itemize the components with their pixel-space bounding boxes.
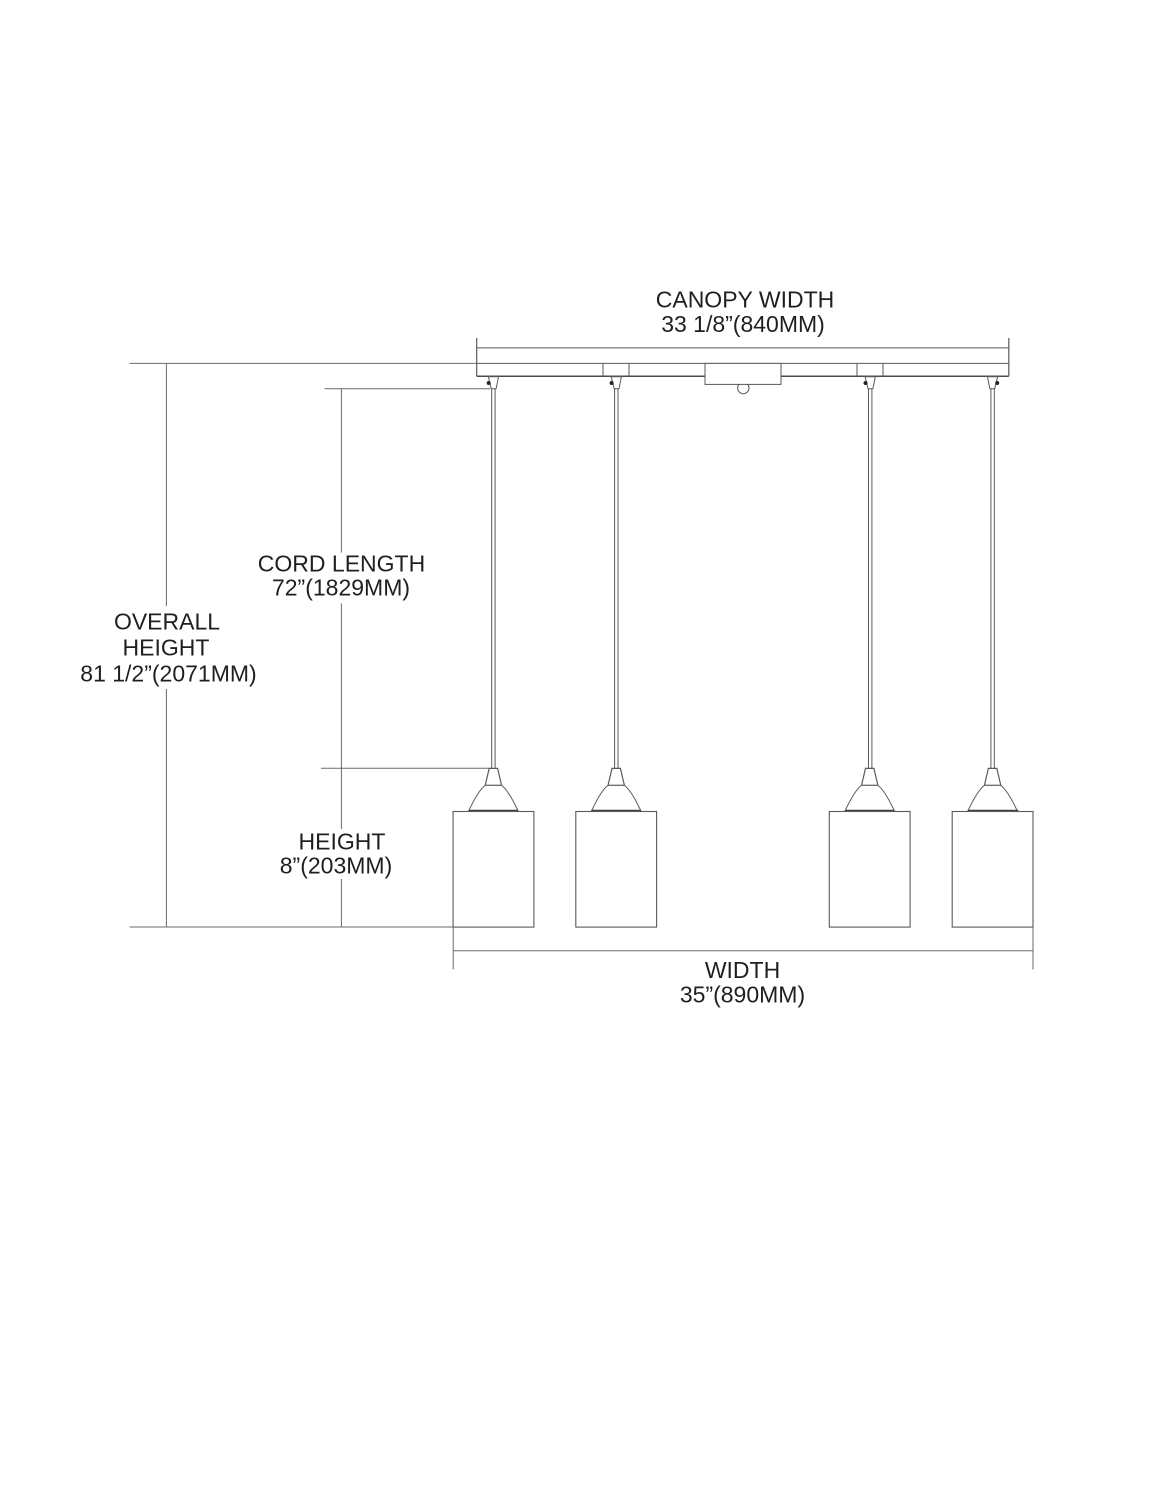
svg-text:CORD LENGTH: CORD LENGTH bbox=[258, 551, 425, 577]
svg-text:33 1/8”(840MM): 33 1/8”(840MM) bbox=[661, 311, 825, 337]
svg-text:CANOPY WIDTH: CANOPY WIDTH bbox=[656, 287, 834, 313]
svg-text:72”(1829MM): 72”(1829MM) bbox=[272, 575, 410, 601]
svg-text:HEIGHT: HEIGHT bbox=[123, 635, 210, 661]
svg-text:81 1/2”(2071MM): 81 1/2”(2071MM) bbox=[80, 661, 256, 687]
svg-text:8”(203MM): 8”(203MM) bbox=[280, 853, 392, 879]
svg-text:HEIGHT: HEIGHT bbox=[299, 829, 386, 855]
svg-text:35”(890MM): 35”(890MM) bbox=[680, 982, 805, 1008]
svg-text:OVERALL: OVERALL bbox=[114, 609, 220, 635]
svg-text:WIDTH: WIDTH bbox=[705, 957, 780, 983]
